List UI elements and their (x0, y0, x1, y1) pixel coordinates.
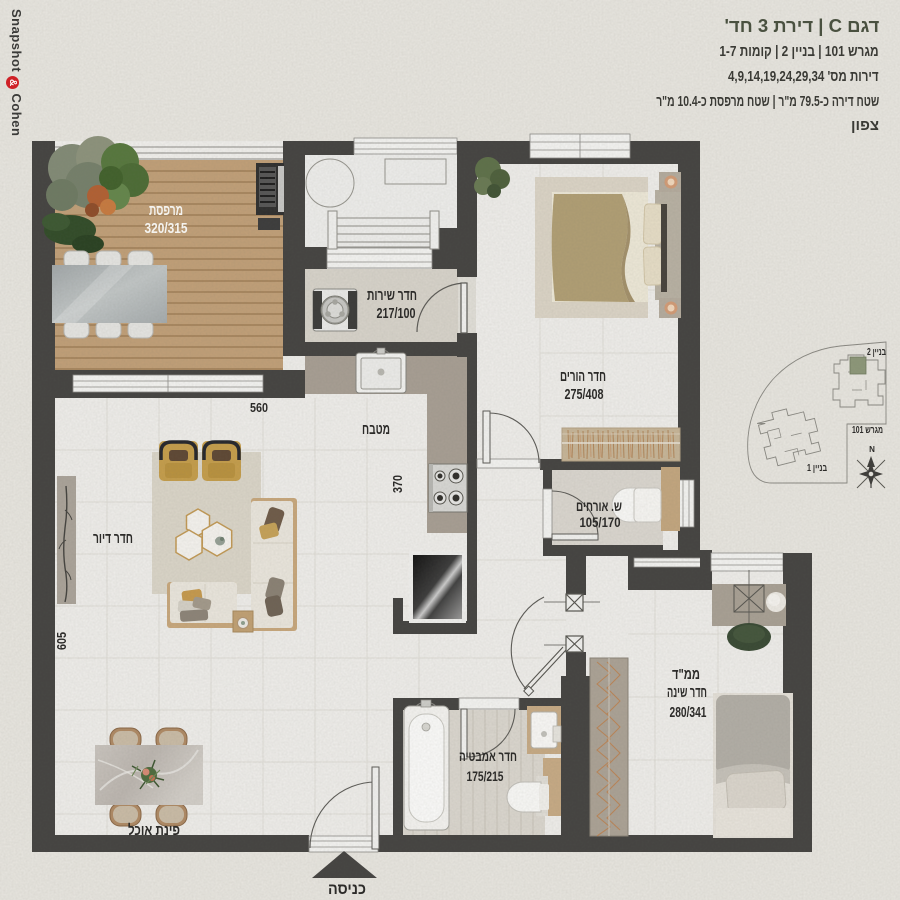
svg-text:105/170: 105/170 (580, 514, 621, 530)
svg-text:175/215: 175/215 (467, 768, 504, 784)
svg-text:חדר דיור: חדר דיור (93, 530, 133, 547)
svg-text:ש. אורחים: ש. אורחים (576, 498, 622, 514)
svg-text:בניין 2: בניין 2 (867, 347, 886, 358)
svg-text:N: N (869, 445, 875, 454)
svg-text:חדר אמבטיה: חדר אמבטיה (459, 748, 517, 764)
svg-text:370: 370 (391, 475, 405, 493)
svg-text:פינת אוכל: פינת אוכל (128, 822, 180, 839)
svg-text:חדר הורים: חדר הורים (560, 368, 606, 385)
svg-text:חדר שינה: חדר שינה (667, 684, 707, 701)
svg-text:217/100: 217/100 (377, 305, 416, 322)
svg-text:ממ"ד: ממ"ד (672, 666, 700, 683)
svg-text:605: 605 (55, 632, 69, 650)
svg-text:כניסה: כניסה (328, 881, 366, 898)
svg-text:מטבח: מטבח (362, 421, 390, 438)
svg-text:חדר שירות: חדר שירות (367, 287, 417, 304)
svg-text:320/315: 320/315 (145, 220, 188, 237)
svg-text:275/408: 275/408 (565, 386, 604, 403)
svg-text:בניין 1: בניין 1 (807, 463, 827, 474)
svg-text:560: 560 (250, 401, 268, 415)
svg-text:280/341: 280/341 (670, 704, 707, 721)
svg-text:מרפסת: מרפסת (149, 202, 183, 219)
svg-text:מגרש 101: מגרש 101 (852, 425, 883, 436)
